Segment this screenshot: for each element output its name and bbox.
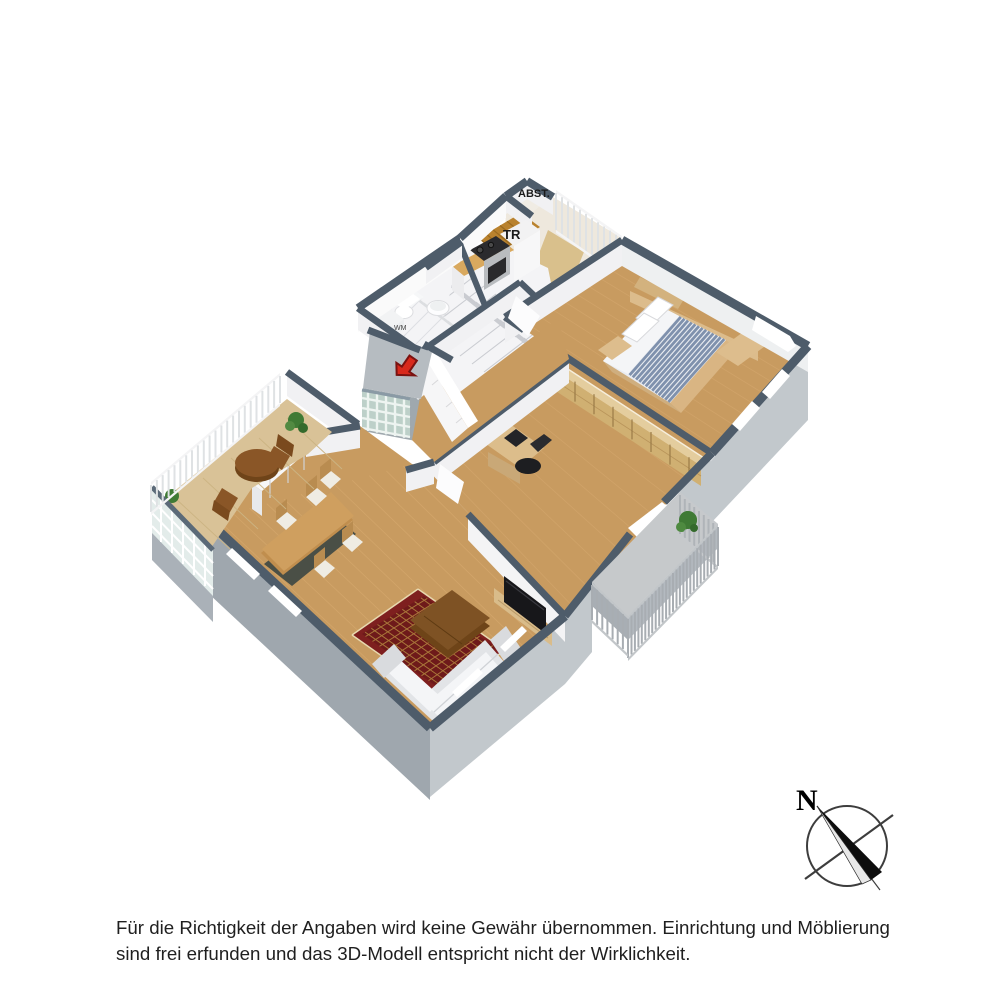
svg-text:N: N [796,784,818,817]
svg-text:Für die Richtigkeit der Angabe: Für die Richtigkeit der Angaben wird kei… [116,917,890,938]
svg-text:WM: WM [394,325,407,332]
svg-text:ABST.: ABST. [518,188,550,200]
svg-text:TR: TR [503,227,521,242]
svg-text:sind frei erfunden und das 3D-: sind frei erfunden und das 3D-Modell ent… [116,943,690,964]
